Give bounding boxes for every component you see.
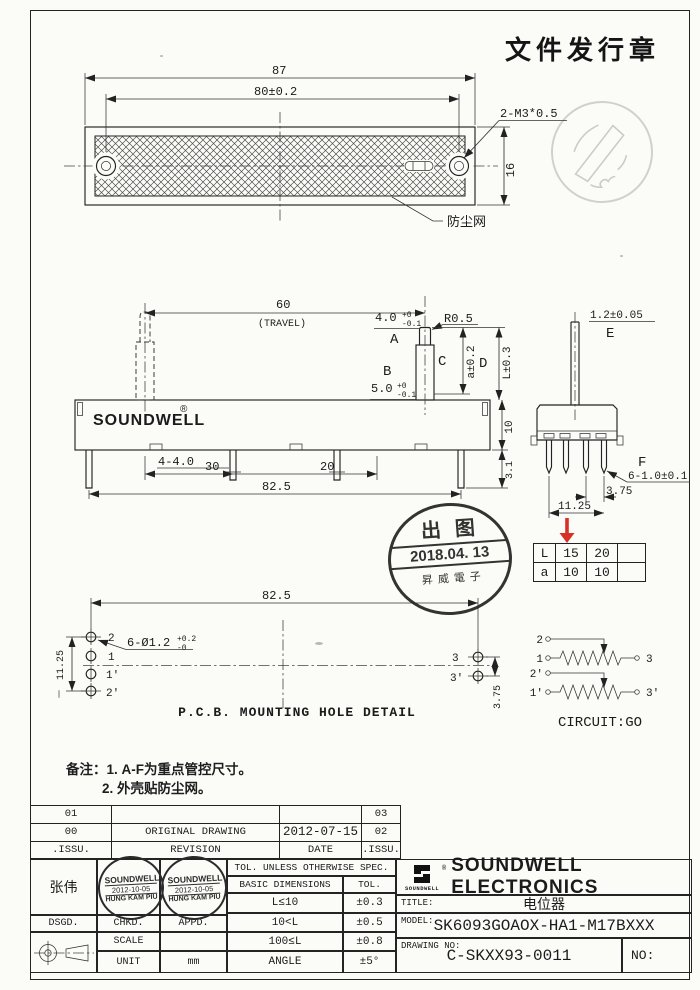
dim-hole-pitch-80: 80±0.2 bbox=[254, 85, 297, 99]
dim-d-value: L±0.3 bbox=[502, 346, 514, 379]
note-1: 1. A-F为重点管控尺寸。 bbox=[107, 762, 253, 777]
circuit-bottom-resistor bbox=[546, 671, 640, 699]
note-2: 2. 外壳贴防尘网。 bbox=[102, 781, 212, 796]
circuit-terminal-3p: 3' bbox=[646, 688, 659, 700]
first-angle-projection-icon bbox=[32, 935, 96, 971]
revision-header-row: .ISSU. REVISION DATE .ISSU. bbox=[31, 841, 401, 859]
travel-note: (TRAVEL) bbox=[258, 318, 306, 330]
drawing-no-row: DRAWING NO: C-SKXX93-0011 bbox=[396, 938, 622, 973]
circuit-terminal-1: 1 bbox=[536, 654, 543, 666]
circuit-terminal-1p: 1' bbox=[530, 688, 543, 700]
title-label: TITLE: bbox=[401, 898, 433, 908]
tol-range: 100≤L bbox=[227, 932, 343, 951]
dim-c-value: a±0.2 bbox=[466, 345, 478, 378]
cell: 01 bbox=[31, 806, 112, 824]
front-view-drawing: SOUNDWELL ® 60 (TRAVEL) 4.0 +0 -0.1 bbox=[75, 296, 516, 499]
pcb-dim-left-span: 11.25 bbox=[56, 650, 67, 680]
note-line-2: 2. 外壳贴防尘网。 bbox=[66, 779, 252, 798]
basic-dimensions-header: BASIC DIMENSIONS bbox=[227, 876, 343, 893]
dim-pin-width: 6-1.0±0.1 bbox=[628, 471, 688, 483]
tol-value: ±0.3 bbox=[343, 893, 396, 913]
company-logo: SOUNDWELL ® bbox=[405, 863, 439, 892]
dim-body-height-10: 10 bbox=[504, 420, 516, 433]
right-mount-hole bbox=[446, 153, 473, 180]
adjuster-slot bbox=[404, 160, 434, 172]
projection-symbol-cell bbox=[30, 932, 97, 973]
dim-b-tol-plus: +0 bbox=[397, 382, 407, 391]
cell: 20 bbox=[587, 544, 618, 563]
lever-travel-ghost bbox=[136, 303, 154, 412]
tolerance-header: TOL. UNLESS OTHERWISE SPEC. bbox=[227, 859, 396, 876]
cell: 15 bbox=[556, 544, 587, 563]
pcb-label-1p: 1' bbox=[106, 670, 119, 682]
scale-label: SCALE bbox=[97, 932, 160, 951]
tol-column-header: TOL. bbox=[343, 876, 396, 893]
circuit-diagram: 2 1 2' 1' 3 3' CIRCUIT:GO bbox=[530, 635, 659, 731]
pcb-hole-spec: 6-Ø1.2 bbox=[127, 636, 170, 650]
dim-b-tol-minus: -0.1 bbox=[397, 391, 416, 400]
scale-value bbox=[160, 932, 227, 951]
cell: 03 bbox=[362, 806, 401, 824]
circuit-terminal-2: 2 bbox=[536, 635, 543, 647]
key-dim-c: C bbox=[438, 354, 446, 370]
pcb-label-2: 2 bbox=[108, 633, 115, 645]
drawing-no-value: C-SKXX93-0011 bbox=[447, 947, 572, 965]
logo-registered-mark: ® bbox=[442, 865, 446, 873]
lever-solid bbox=[416, 296, 434, 415]
circuit-terminal-2p: 2' bbox=[530, 669, 543, 681]
dim-pin-pitch: 3.75 bbox=[606, 486, 632, 498]
title-row: TITLE: 电位器 bbox=[396, 895, 692, 913]
dim-travel-60: 60 bbox=[276, 298, 290, 312]
cell bbox=[618, 544, 646, 563]
revision-table: 01 03 00 ORIGINAL DRAWING 2012-07-15 02 … bbox=[30, 805, 401, 859]
title-block: 张伟 SOUNDWELL 2012-10-05 HUNG KAM PIU SOU… bbox=[30, 859, 692, 973]
revision-row: 01 03 bbox=[31, 806, 401, 824]
pcb-label-3p: 3' bbox=[450, 673, 463, 685]
cell bbox=[618, 563, 646, 582]
unit-value: mm bbox=[160, 951, 227, 973]
cell: 10 bbox=[587, 563, 618, 582]
circuit-terminal-3: 3 bbox=[646, 654, 653, 666]
key-dim-e: E bbox=[606, 326, 614, 342]
pcb-dim-right-pitch: 3.75 bbox=[493, 685, 504, 709]
variant-table: L 15 20 a 10 10 bbox=[533, 543, 646, 582]
title-value: 电位器 bbox=[523, 894, 565, 914]
side-view-drawing: 1.2±0.05 E F 6-1.0±0.1 bbox=[531, 310, 690, 543]
notes-block: 备注：1. A-F为重点管控尺寸。 2. 外壳贴防尘网。 bbox=[66, 760, 252, 798]
screw-spec-label: 2-M3*0.5 bbox=[500, 107, 558, 121]
circuit-caption: CIRCUIT:GO bbox=[558, 715, 642, 731]
dim-pin-length-3-1: 3.1 bbox=[505, 461, 516, 479]
scan-speck bbox=[620, 255, 623, 257]
scan-speck bbox=[315, 642, 323, 645]
tol-range: ANGLE bbox=[227, 951, 343, 973]
tol-range: L≤10 bbox=[227, 893, 343, 913]
drawing-no-label: DRAWING NO: bbox=[401, 941, 460, 951]
dim-lever-thickness: 1.2±0.05 bbox=[590, 310, 643, 322]
pcb-left-holes bbox=[81, 629, 101, 699]
terminal-pins bbox=[547, 440, 607, 473]
dim-base-82-5: 82.5 bbox=[262, 480, 291, 494]
cell: 00 bbox=[31, 823, 112, 841]
release-stamp-title: 出图 bbox=[406, 510, 490, 545]
model-row: MODEL: SK6093GOAOX-HA1-M17BXXX bbox=[396, 913, 692, 938]
tol-value: ±5° bbox=[343, 951, 396, 973]
tol-range: 10<L bbox=[227, 913, 343, 932]
revision-row: 00 ORIGINAL DRAWING 2012-07-15 02 bbox=[31, 823, 401, 841]
pcb-hole-tol-minus: -0 bbox=[177, 644, 187, 653]
pcb-right-holes bbox=[468, 649, 488, 684]
soundwell-logo-icon bbox=[410, 863, 434, 885]
top-view-drawing: 87 80±0.2 2-M3*0.5 16 防尘网 bbox=[64, 64, 567, 229]
tol-value: ±0.5 bbox=[343, 913, 396, 932]
model-value: SK6093GOAOX-HA1-M17BXXX bbox=[434, 917, 655, 935]
radius-label: R0.5 bbox=[444, 312, 473, 326]
dim-a-tol-plus: +0 bbox=[402, 311, 412, 320]
cell bbox=[280, 806, 362, 824]
scan-speck bbox=[160, 55, 163, 57]
brand-registered-mark: ® bbox=[180, 404, 188, 415]
dim-height-16: 16 bbox=[504, 163, 518, 177]
scan-speck bbox=[58, 690, 60, 698]
unit-label: UNIT bbox=[97, 951, 160, 973]
cell: .ISSU. bbox=[362, 841, 401, 859]
dim-30: 30 bbox=[205, 460, 219, 474]
pcb-hole-tol-plus: +0.2 bbox=[177, 635, 196, 644]
engineering-drawing-sheet: 文件发行章 bbox=[0, 0, 700, 990]
company-header-cell: SOUNDWELL ® SOUNDWELL ELECTRONICS bbox=[396, 859, 692, 895]
key-dim-f: F bbox=[638, 455, 646, 471]
cell: 10 bbox=[556, 563, 587, 582]
dim-a-tol-minus: -0.1 bbox=[402, 320, 421, 329]
cell bbox=[112, 806, 280, 824]
key-dim-a: A bbox=[390, 332, 399, 348]
cell: DATE bbox=[280, 841, 362, 859]
brand-text: SOUNDWELL bbox=[93, 412, 205, 429]
dim-overall-87: 87 bbox=[272, 64, 286, 78]
cell: L bbox=[534, 544, 556, 563]
pcb-label-2p: 2' bbox=[106, 688, 119, 700]
variant-row-a: a 10 10 bbox=[534, 563, 646, 582]
variant-pointer-arrow bbox=[560, 518, 575, 543]
company-name: SOUNDWELL ELECTRONICS bbox=[451, 855, 691, 899]
release-stamp-company: 昇威電子 bbox=[416, 568, 486, 589]
cell: .ISSU. bbox=[31, 841, 112, 859]
pcb-label-1: 1 bbox=[108, 652, 115, 664]
notes-label: 备注： bbox=[66, 762, 107, 777]
dim-a-value: 4.0 bbox=[375, 311, 397, 325]
dim-20: 20 bbox=[320, 460, 334, 474]
model-label: MODEL: bbox=[401, 916, 433, 926]
dim-pin-span: 11.25 bbox=[558, 501, 591, 513]
designer-name: 张伟 bbox=[30, 859, 97, 915]
note-line-1: 备注：1. A-F为重点管控尺寸。 bbox=[66, 760, 252, 779]
pcb-dim-span: 82.5 bbox=[262, 589, 291, 603]
no-cell: NO: bbox=[622, 938, 692, 973]
pcb-label-3: 3 bbox=[452, 653, 459, 665]
dsgd-label: DSGD. bbox=[30, 915, 97, 932]
circuit-top-resistor bbox=[546, 637, 640, 665]
left-mount-hole bbox=[93, 153, 120, 180]
key-dim-b: B bbox=[383, 364, 391, 380]
dust-net-label: 防尘网 bbox=[447, 214, 486, 229]
stamp-signer: HUNG KAM PIU bbox=[103, 894, 159, 904]
logo-caption: SOUNDWELL bbox=[405, 885, 439, 892]
stamp-signer: HUNG KAM PIU bbox=[166, 894, 222, 904]
dim-b-value: 5.0 bbox=[371, 382, 393, 396]
cell: ORIGINAL DRAWING bbox=[112, 823, 280, 841]
cell: 02 bbox=[362, 823, 401, 841]
key-dim-d: D bbox=[479, 356, 487, 372]
dim-lugs-label: 4-4.0 bbox=[158, 455, 194, 469]
cell: a bbox=[534, 563, 556, 582]
variant-row-L: L 15 20 bbox=[534, 544, 646, 563]
cell: 2012-07-15 bbox=[280, 823, 362, 841]
tol-value: ±0.8 bbox=[343, 932, 396, 951]
pcb-caption: P.C.B. MOUNTING HOLE DETAIL bbox=[178, 705, 416, 720]
